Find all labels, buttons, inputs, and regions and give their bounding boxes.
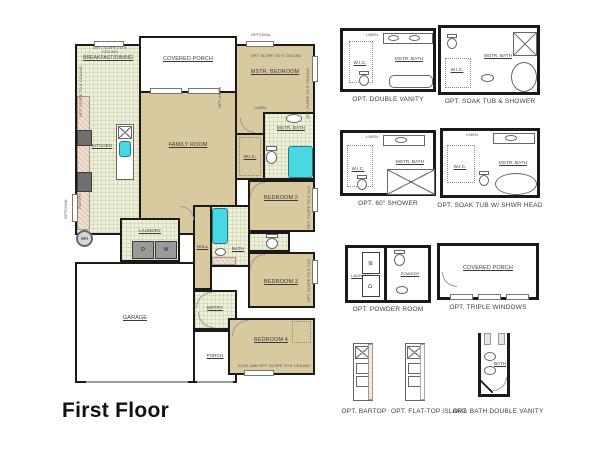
room-label-kitchen: KITCHEN	[84, 144, 120, 149]
sink-fixture	[484, 352, 496, 361]
master-toilet-bowl	[266, 151, 277, 164]
pantry-label: PANTRY	[78, 186, 85, 216]
room-label-hall: HALL	[193, 245, 212, 250]
window	[244, 370, 274, 376]
shower-fixture	[387, 169, 435, 195]
opt-caption-powder-room: OPT. POWDER ROOM	[330, 306, 446, 313]
water-heater-letters: WH	[81, 236, 89, 241]
room-label-entry: ENTRY	[200, 306, 230, 311]
wic-label: W.I.C.	[345, 61, 375, 66]
window	[450, 294, 473, 300]
room-label-garage: GARAGE	[105, 316, 165, 322]
room-label-master-bedroom: MSTR. BEDROOM	[243, 70, 307, 76]
bathtub-fixture	[389, 75, 433, 88]
room-label-breakfast: BREAKFAST/DINING	[80, 56, 136, 61]
opt-caption-60-shower: OPT. 60" SHOWER	[330, 200, 446, 207]
washer-letter: W	[368, 261, 374, 266]
dryer-letter: D	[141, 247, 145, 253]
hall-bathtub	[212, 208, 228, 244]
opt-diagram-bartop	[353, 343, 373, 401]
linen-label: LINEN	[363, 33, 381, 37]
sink-fixture	[505, 135, 517, 141]
room-label-master-bath: MSTR. BATH	[272, 126, 310, 131]
opt-arch-note: OPT. ARCH	[218, 80, 225, 114]
window	[188, 88, 220, 94]
nook-toilet-bowl	[266, 238, 278, 249]
soak-tub-fixture	[511, 62, 537, 92]
sink-fixture	[481, 74, 494, 82]
wic-label: W.I.C.	[443, 68, 471, 73]
dryer-box: D	[362, 275, 380, 297]
room-label-bedroom4: BEDROOM 4	[240, 338, 302, 344]
linen-label: LINEN	[463, 133, 481, 137]
wic-label: W.I.C.	[445, 165, 475, 170]
linen-label: LINEN	[250, 106, 270, 110]
room-garage	[75, 262, 195, 383]
room-label-bedroom3: BEDROOM 3	[256, 280, 306, 286]
washer-box: W	[362, 252, 380, 274]
opt-caption-triple-windows: OPT. TRIPLE WINDOWS	[432, 304, 544, 311]
opt-diagram-soak-tub-shower: W.I.C. MSTR. BATH	[438, 25, 540, 95]
wic-label: W.I.C.	[343, 167, 373, 172]
island-counter	[420, 344, 425, 400]
covered-porch-label: COVERED PORCH	[440, 266, 536, 272]
opt-diagram-double-vanity: W.I.C. LINEN MSTR. BATH	[340, 28, 436, 92]
opt-caption-soak-tub-shower: OPT. SOAK TUB & SHOWER	[434, 98, 546, 105]
bath-label: BATH	[491, 362, 509, 367]
opt-diagram-60-shower: W.I.C. LINEN MSTR. BATH	[340, 130, 436, 196]
garage-door-line	[86, 381, 188, 383]
opt-caption-soak-tub-shwr-head: OPT. SOAK TUB W/ SHWR HEAD	[432, 202, 548, 209]
bartop-counter	[368, 344, 373, 400]
optional-window-note-master: OPTIONAL	[248, 33, 274, 37]
sink-fixture	[395, 137, 407, 143]
toilet-bowl	[357, 179, 367, 190]
window	[150, 88, 182, 94]
wic-shelves	[445, 58, 471, 88]
toilet-bowl	[394, 254, 405, 266]
opt-diagram-bath-double-vanity: BATH	[478, 333, 510, 397]
master-bathtub	[288, 146, 313, 178]
soak-tub-fixture	[495, 173, 537, 195]
washer-box: W	[155, 241, 177, 259]
room-label-laundry: LAUNDRY	[134, 229, 166, 234]
slope-note-bedroom2-v: OPT. SLOPE TO 9' CLG	[307, 185, 314, 229]
opt-diagram-soak-tub-shwr-head: LINEN W.I.C. MSTR. BATH	[440, 128, 540, 198]
master-bath-label: MSTR. BATH	[385, 57, 433, 62]
window	[506, 294, 529, 300]
sink-fixture	[388, 35, 399, 41]
angled-wall	[479, 379, 493, 393]
room-label-bedroom2: BEDROOM 2	[256, 196, 306, 202]
window	[246, 41, 274, 47]
window	[478, 294, 501, 300]
porch-step-line	[197, 381, 233, 383]
master-bath-label: MSTR. BATH	[487, 161, 539, 166]
slope-note-bedroom3-v: OPT. SLOPE TO 9' CLG	[307, 258, 314, 302]
room-label-covered-porch: COVERED PORCH	[155, 57, 221, 63]
kitchen-sink	[119, 141, 131, 157]
dryer-letter: D	[368, 284, 374, 288]
bedroom4-note: ELEV. A&B OPT. SLOPE TO 9' CEILING	[236, 364, 312, 368]
powder-label: POWDER	[390, 272, 430, 276]
shower-wall-stub	[484, 333, 491, 345]
washer-letter: W	[164, 247, 169, 253]
toilet-bowl	[447, 38, 457, 49]
slope-note-breakfast-v: OPT. SLOPE TO 9' CEILING	[79, 60, 86, 122]
slope-note-breakfast: OPT. SLOPE TO 9' CEILING	[88, 46, 132, 54]
toilet-bowl	[359, 75, 369, 86]
sink-fixture	[409, 35, 420, 41]
shower-wall-stub	[498, 333, 505, 345]
wall-divider	[384, 248, 387, 300]
room-label-family-room: FAMILY ROOM	[156, 143, 220, 149]
optional-window-note-left: OPTIONAL	[64, 196, 71, 222]
opt-diagram-flat-top-island	[405, 343, 425, 401]
door-arc	[493, 377, 507, 391]
linen-label: LINEN	[363, 135, 381, 139]
room-label-porch: PORCH	[200, 354, 230, 359]
hall-bath-counter	[212, 257, 236, 265]
toilet-bowl	[479, 175, 489, 186]
water-heater: WH	[76, 230, 93, 247]
opt-caption-double-vanity: OPT. DOUBLE VANITY	[330, 96, 446, 103]
master-bath-sink	[286, 114, 302, 123]
room-label-wic: W.I.C.	[238, 155, 262, 160]
shower-fixture	[513, 32, 537, 56]
hall-bath-sink	[215, 248, 226, 256]
floor-plan-sheet: D W WH BREAKFAST/DINING KITCHEN COVERED …	[0, 0, 600, 450]
sink-fixture	[396, 286, 408, 294]
opt-caption-bath-double-vanity: OPT. BATH DOUBLE VANITY	[444, 408, 552, 415]
opt-diagram-triple-windows: COVERED PORCH	[437, 243, 539, 300]
slope-note-master-v: OPT. SLOPE TO 9' CEILING	[306, 62, 313, 124]
slope-note-master: OPT. SLOPE TO 9' CEILING	[248, 54, 304, 58]
door-arc	[442, 272, 457, 287]
page-title: First Floor	[62, 399, 169, 423]
cooktop-icon	[118, 126, 132, 139]
opt-diagram-powder-room: LAUNDRY W D POWDER	[345, 245, 431, 303]
sink-fixture	[484, 366, 496, 375]
room-label-bath: BATH	[228, 247, 248, 252]
dryer-box: D	[132, 241, 154, 259]
master-bath-label: MSTR. BATH	[385, 160, 435, 165]
